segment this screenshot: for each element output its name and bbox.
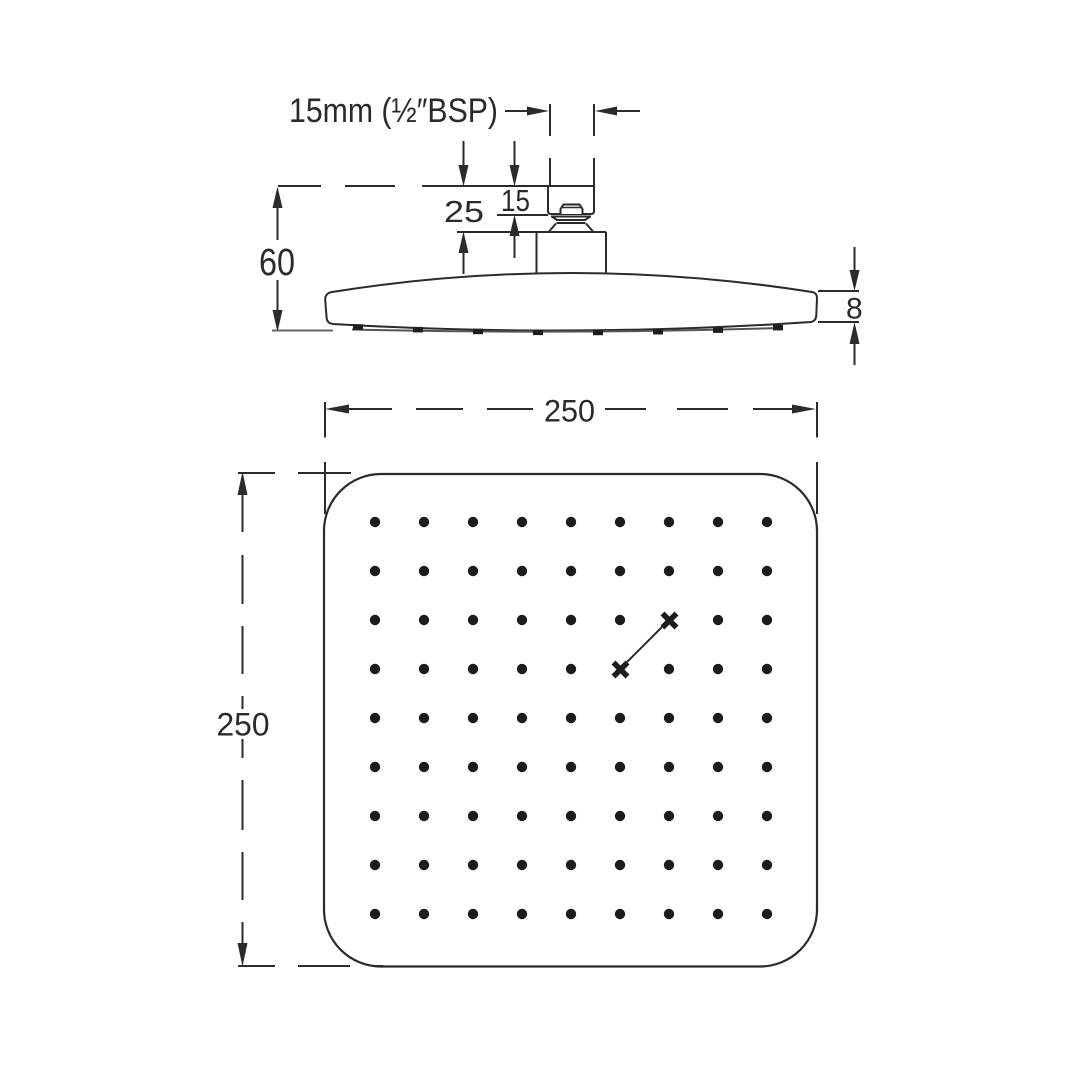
svg-text:250: 250 (217, 707, 270, 743)
svg-text:8: 8 (846, 293, 863, 326)
svg-text:25: 25 (444, 195, 484, 229)
svg-text:60: 60 (259, 242, 295, 284)
svg-text:250: 250 (544, 393, 595, 429)
svg-text:15: 15 (501, 184, 530, 218)
svg-text:15mm (½″BSP): 15mm (½″BSP) (289, 92, 498, 130)
